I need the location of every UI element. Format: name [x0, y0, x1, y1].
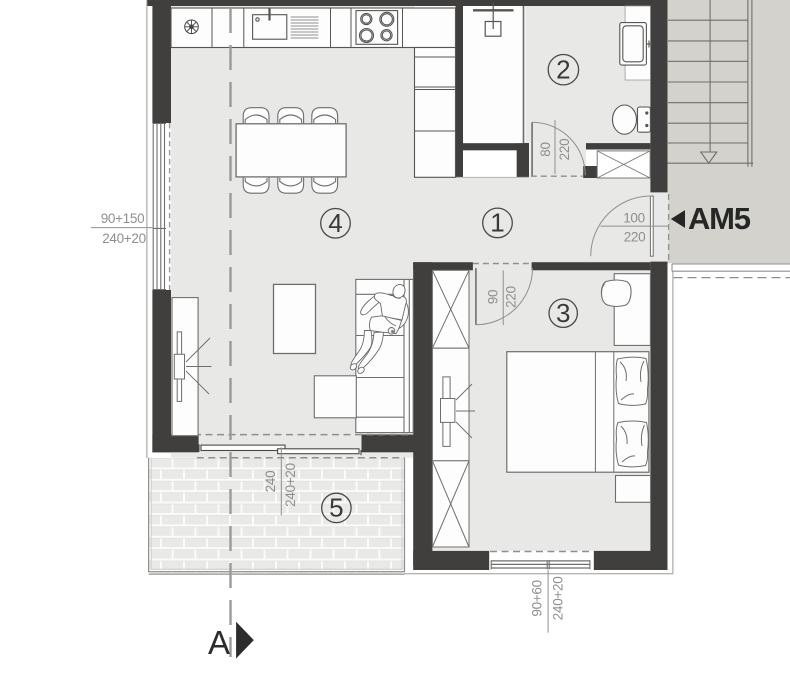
svg-text:2: 2	[556, 54, 570, 84]
svg-text:240+20: 240+20	[102, 231, 146, 246]
svg-text:A: A	[208, 624, 230, 661]
svg-text:AM5: AM5	[688, 201, 751, 236]
svg-text:3: 3	[556, 298, 570, 328]
svg-text:5: 5	[329, 493, 343, 523]
svg-text:4: 4	[328, 208, 342, 238]
svg-text:220: 220	[624, 230, 646, 245]
svg-text:220: 220	[504, 286, 519, 308]
svg-text:240+20: 240+20	[550, 577, 565, 621]
svg-text:80: 80	[538, 142, 553, 156]
svg-text:90+150: 90+150	[101, 211, 145, 226]
svg-text:90+60: 90+60	[529, 580, 544, 616]
svg-text:240: 240	[263, 471, 278, 493]
svg-text:100: 100	[623, 211, 645, 226]
svg-text:220: 220	[557, 139, 572, 161]
svg-text:240+20: 240+20	[283, 463, 298, 507]
svg-text:1: 1	[490, 208, 504, 238]
svg-text:90: 90	[486, 290, 501, 304]
